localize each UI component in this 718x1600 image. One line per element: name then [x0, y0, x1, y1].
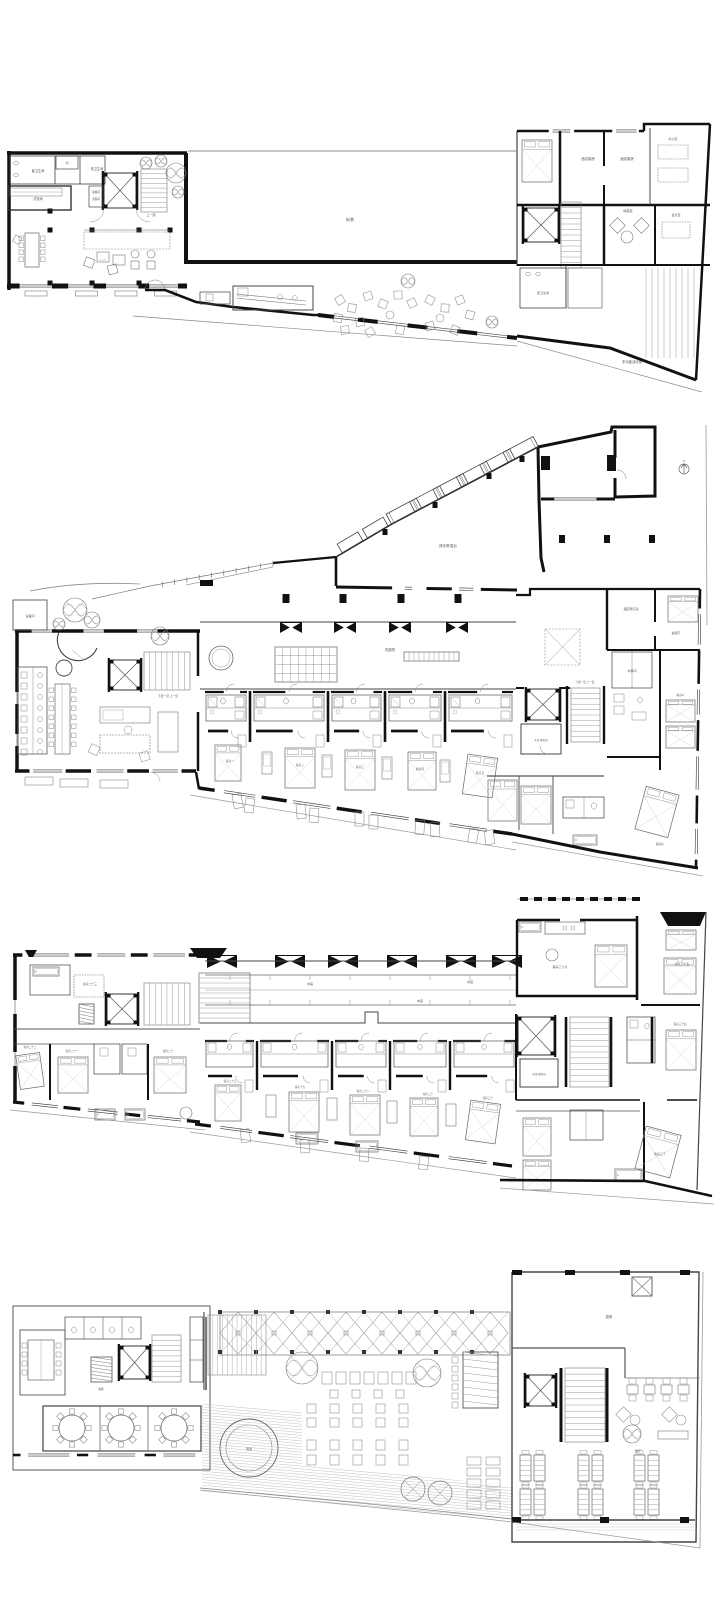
svg-text:N: N [683, 459, 685, 463]
svg-text:布草·服务间: 布草·服务间 [532, 1072, 546, 1076]
svg-text:酒店客房: 酒店客房 [620, 156, 634, 161]
svg-text:会议室: 会议室 [671, 212, 680, 217]
svg-text:客房E: 客房E [676, 693, 684, 697]
svg-text:绿化带/露台: 绿化带/露台 [439, 543, 458, 548]
svg-text:客房二十五: 客房二十五 [224, 1079, 237, 1083]
svg-text:客房三十: 客房三十 [654, 1151, 666, 1156]
svg-text:办公区: 办公区 [668, 136, 677, 141]
svg-text:客房二十一: 客房二十一 [66, 1049, 79, 1053]
svg-text:客房三十: 客房三十 [483, 1096, 494, 1100]
svg-text:街巷: 街巷 [346, 216, 354, 222]
svg-text:会客厅: 会客厅 [671, 630, 680, 635]
svg-text:客房三: 客房三 [356, 765, 365, 769]
svg-text:内庭院: 内庭院 [385, 647, 396, 652]
svg-text:酒店客房: 酒店客房 [581, 156, 595, 161]
svg-text:上一层: 上一层 [146, 212, 155, 217]
svg-text:客房二十: 客房二十 [423, 1092, 434, 1096]
svg-text:客房十九: 客房十九 [295, 1085, 306, 1089]
svg-text:中庭: 中庭 [467, 979, 473, 984]
svg-text:泡池: 泡池 [246, 1446, 252, 1451]
svg-text:客房二十三: 客房二十三 [83, 982, 97, 986]
svg-text:间: 间 [65, 160, 68, 165]
svg-text:客房三十六: 客房三十六 [552, 964, 567, 969]
svg-text:客卫生间: 客卫生间 [32, 168, 45, 173]
svg-text:下至一层 上一层: 下至一层 上一层 [158, 694, 179, 698]
svg-text:中庭: 中庭 [307, 981, 313, 986]
svg-text:布草·服务间: 布草·服务间 [534, 738, 548, 742]
svg-text:客房五: 客房五 [476, 771, 485, 775]
svg-text:设备间: 设备间 [25, 613, 34, 618]
svg-text:男卫生间: 男卫生间 [91, 166, 104, 171]
svg-text:客房二十: 客房二十 [163, 1049, 174, 1053]
svg-text:备餐间: 备餐间 [92, 190, 100, 194]
svg-text:客房二十八: 客房二十八 [357, 1089, 370, 1093]
svg-text:厨房: 厨房 [606, 1314, 613, 1319]
svg-text:下客一层 上一层: 下客一层 上一层 [576, 680, 595, 684]
svg-text:客房三十四: 客房三十四 [674, 1022, 687, 1026]
svg-text:试衣间: 试衣间 [33, 196, 43, 201]
svg-text:男卫生间: 男卫生间 [537, 290, 549, 295]
svg-text:客房一: 客房一 [226, 759, 235, 763]
svg-text:淋浴间: 淋浴间 [416, 767, 425, 771]
svg-text:客房C: 客房C [656, 841, 665, 846]
svg-text:洗碗间: 洗碗间 [92, 197, 100, 201]
svg-text:客房二十二: 客房二十二 [24, 1045, 37, 1049]
svg-text:酒店预订房: 酒店预订房 [623, 606, 638, 611]
svg-text:中庭: 中庭 [417, 998, 423, 1003]
svg-text:客房二: 客房二 [296, 763, 305, 767]
svg-text:休息区: 休息区 [623, 208, 633, 213]
svg-text:备餐: 备餐 [98, 1387, 104, 1391]
svg-text:布草间: 布草间 [627, 668, 636, 673]
